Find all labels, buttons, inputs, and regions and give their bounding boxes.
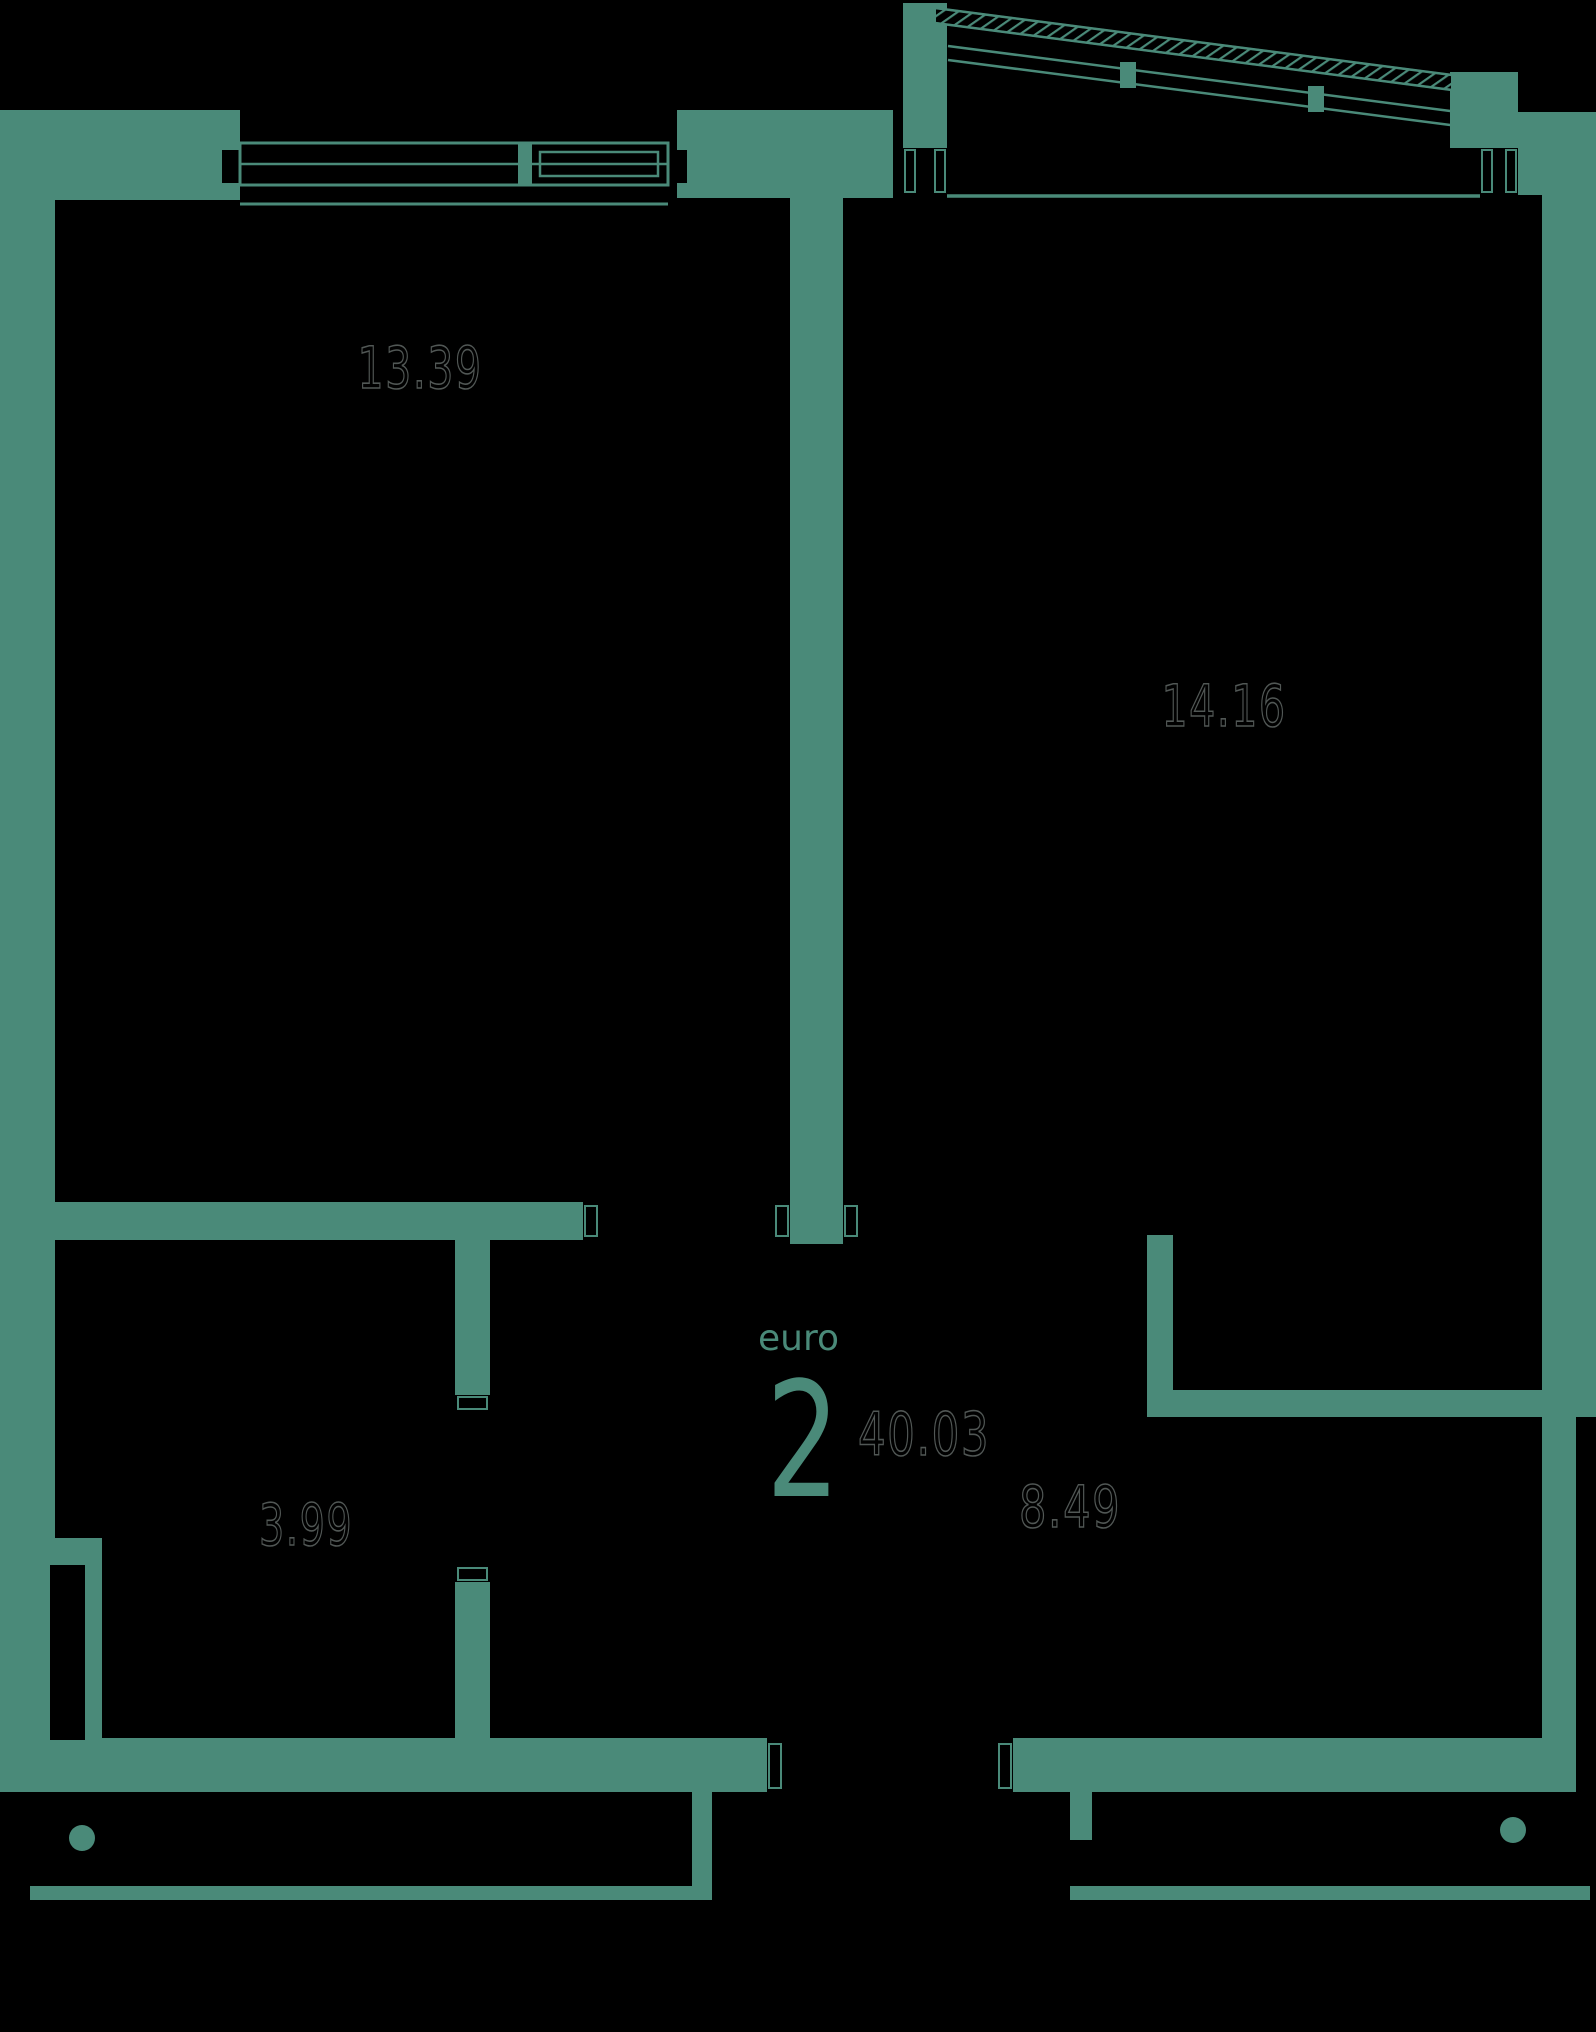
wall-right-flare [1518,112,1596,195]
floor-plan-svg: 13.39 14.16 3.99 8.49 euro 2 40.03 [0,0,1596,2032]
floor-plan-page: 13.39 14.16 3.99 8.49 euro 2 40.03 [0,0,1596,2032]
terrace-right-strip [1070,1886,1590,1900]
unit-type-number: 2 [766,1347,840,1534]
room-area-label-top-right: 14.16 [1162,672,1287,740]
balcony-glazing-mullion-2 [1308,86,1324,112]
wall-bottom-right [1013,1738,1576,1792]
room-area-label-bottom-right: 8.49 [1019,1473,1121,1541]
wall-central-vertical [790,198,843,1244]
wall-top-middle [677,110,893,198]
wall-middle-horizontal [55,1202,583,1240]
wall-vestibule-lower [455,1582,490,1740]
balcony-glazing-mullion-1 [1120,62,1136,88]
terrace-right-column [1500,1817,1526,1843]
wall-kitchen-bar [1147,1235,1173,1417]
wall-vestibule-upper [455,1240,490,1395]
wall-top-left-corner [0,110,240,200]
room-area-label-top-left: 13.39 [358,334,483,402]
wall-terrace-left-stub [692,1792,712,1900]
window-end-cap-right [677,150,687,183]
room-area-label-bottom-left: 3.99 [259,1491,353,1559]
window-top-left-mullion [518,143,532,185]
terrace-left-column [69,1825,95,1851]
unit-total-area: 40.03 [858,1400,990,1470]
wall-balcony-right-block [1450,72,1518,148]
wall-right-lower [1542,1417,1576,1792]
wall-kitchen-top [1147,1390,1596,1417]
wall-niche [50,1565,85,1740]
wall-left-outer [0,200,55,1545]
window-end-cap-left [222,150,240,183]
wall-right-upper [1542,195,1596,1390]
terrace-left-strip [30,1886,712,1900]
wall-bottom-left [0,1738,767,1792]
wall-entrance-stub [1070,1792,1092,1840]
